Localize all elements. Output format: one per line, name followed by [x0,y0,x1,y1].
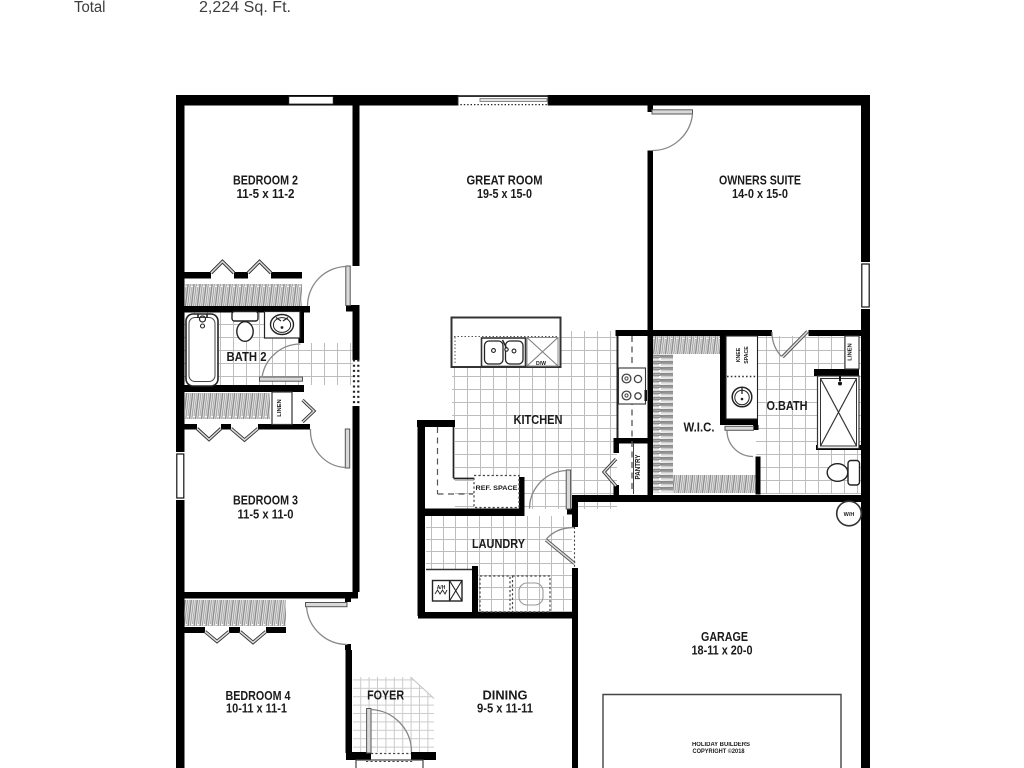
svg-text:2,224 Sq. Ft.: 2,224 Sq. Ft. [199,0,291,16]
svg-text:D/W: D/W [536,361,546,367]
svg-text:W.I.C.: W.I.C. [684,420,715,435]
svg-text:PANTRY: PANTRY [633,455,642,480]
svg-text:BEDROOM 3: BEDROOM 3 [233,492,298,507]
svg-text:O.BATH: O.BATH [767,398,808,413]
svg-text:A/H: A/H [437,585,446,591]
svg-text:LINEN: LINEN [277,399,283,416]
svg-text:9-5 x 11-11: 9-5 x 11-11 [477,700,533,715]
svg-text:COPYRIGHT ©2018: COPYRIGHT ©2018 [693,748,746,755]
svg-text:10-11 x 11-1: 10-11 x 11-1 [226,700,287,715]
svg-text:SPACE: SPACE [744,346,750,364]
svg-text:FOYER: FOYER [367,687,404,702]
svg-text:LAUNDRY: LAUNDRY [472,536,525,551]
svg-text:18-11 x 20-0: 18-11 x 20-0 [692,643,753,658]
svg-text:W/H: W/H [844,512,855,518]
svg-text:BATH 2: BATH 2 [227,349,267,364]
svg-text:HOLIDAY BUILDERS: HOLIDAY BUILDERS [692,742,750,748]
svg-text:19-5 x 15-0: 19-5 x 15-0 [477,186,532,201]
svg-text:14-0 x 15-0: 14-0 x 15-0 [732,186,788,201]
svg-text:KITCHEN: KITCHEN [514,412,563,427]
svg-text:KNEE: KNEE [736,347,742,362]
svg-text:Total: Total [74,0,106,16]
svg-text:LINEN: LINEN [848,343,854,360]
svg-text:11-5 x 11-0: 11-5 x 11-0 [238,506,294,521]
svg-text:REF. SPACE: REF. SPACE [476,485,518,492]
svg-text:11-5 x 11-2: 11-5 x 11-2 [237,186,295,201]
